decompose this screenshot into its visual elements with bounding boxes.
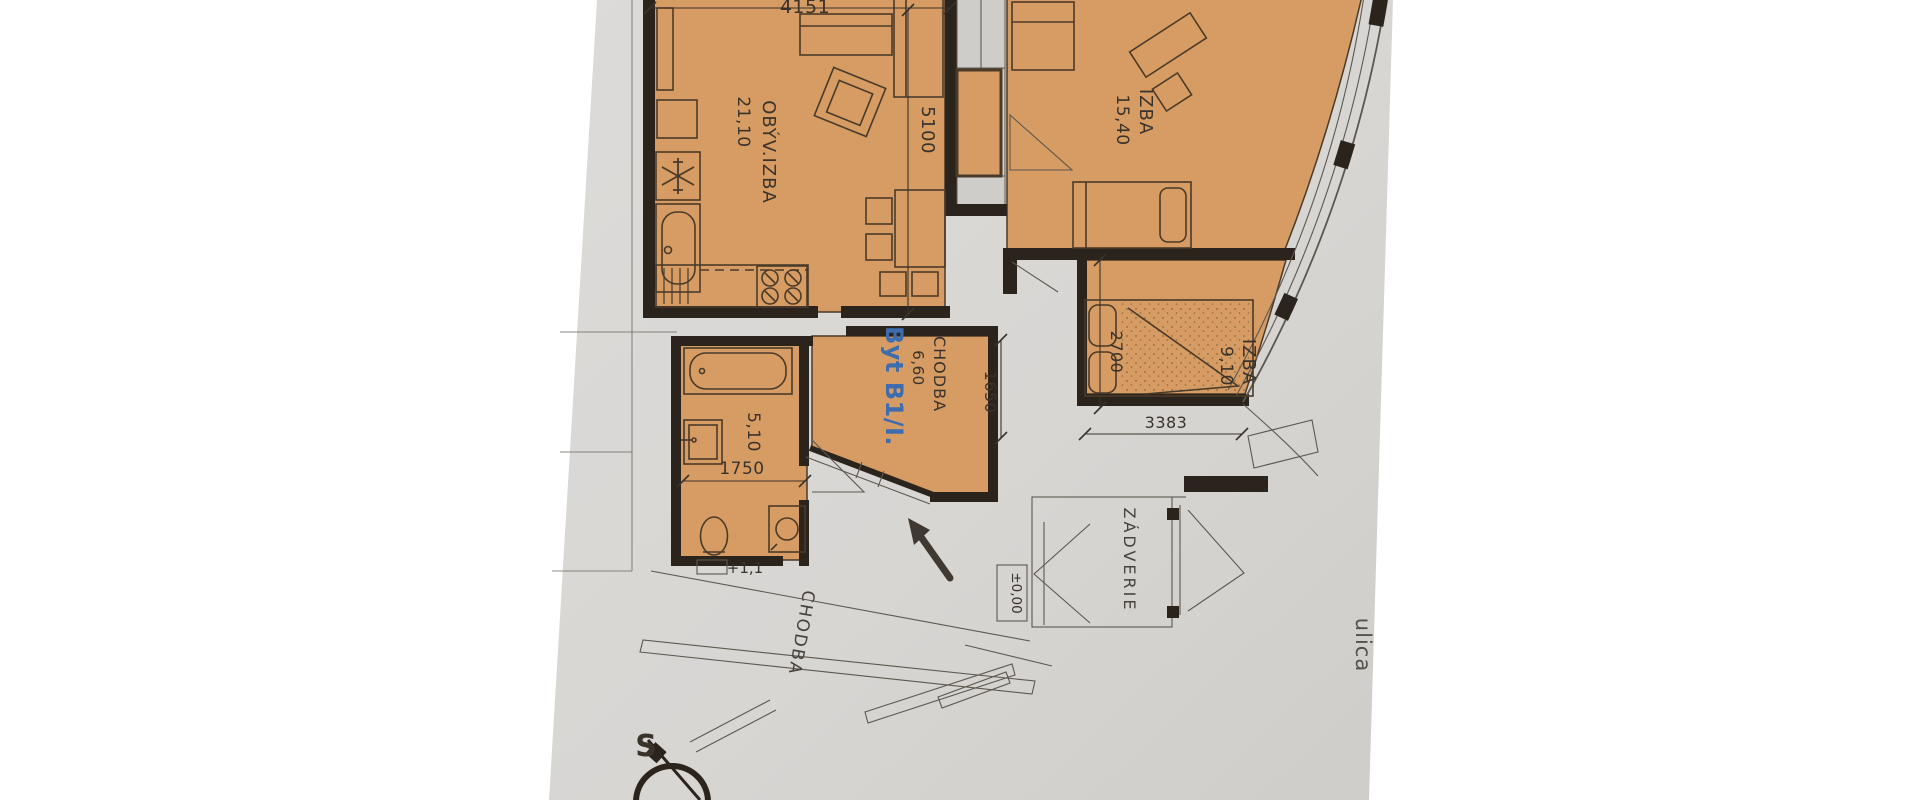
bedroom2-area: 9,10 [1216, 346, 1236, 386]
street-label: ulica [1351, 618, 1375, 672]
bedroom1-area: 15,40 [1112, 94, 1132, 145]
dim-living-top: 4151 [780, 0, 830, 18]
dim-hall-height: 1650 [981, 371, 1000, 414]
floor-plan-svg: OBÝV.IZBA 21,10 IZBA 15,40 IZBA 9,10 CHO… [0, 0, 1920, 800]
bedroom2-label: IZBA [1238, 339, 1259, 385]
vestibule-label: ZÁDVERIE [1120, 508, 1139, 613]
compass-north-label: S [635, 729, 657, 764]
floor-plan-scan: OBÝV.IZBA 21,10 IZBA 15,40 IZBA 9,10 CHO… [0, 0, 1920, 800]
apartment-label: Byt B1/I. [880, 326, 908, 446]
hall-area: 6,60 [909, 350, 927, 385]
dim-living-height: 5100 [917, 106, 938, 154]
level-bathroom: +1,1 [727, 559, 763, 577]
living-room-area: 21,10 [733, 96, 753, 147]
closet [957, 70, 1001, 176]
bedroom1-label: IZBA [1135, 89, 1156, 135]
hall-label: CHODBA [930, 336, 949, 412]
living-room-label: OBÝV.IZBA [758, 100, 780, 204]
dim-bedroom2-height: 2700 [1107, 331, 1126, 374]
dim-bathroom-width: 1750 [719, 459, 764, 479]
level-entrance: ±0,00 [1008, 572, 1024, 613]
bathroom-area: 5,10 [743, 412, 763, 452]
bathroom-floor [679, 344, 807, 560]
dim-bedroom2-width: 3383 [1145, 413, 1188, 432]
